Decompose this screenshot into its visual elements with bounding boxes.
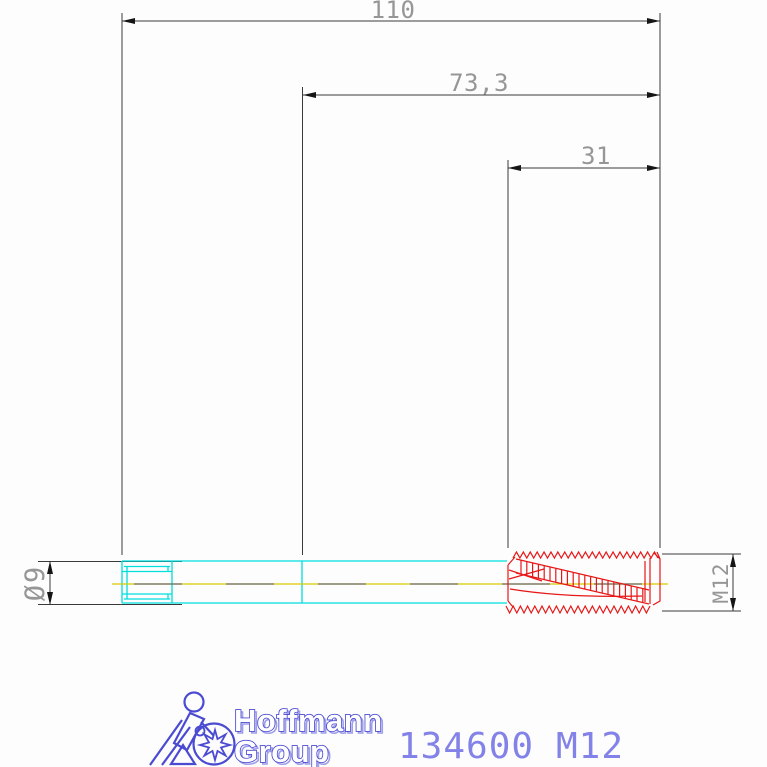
arrow-overall-left (122, 18, 135, 24)
dimension-line-overall (122, 13, 660, 555)
dim-label-thread-length: 31 (581, 142, 611, 170)
hoffmann-group-logo-icon (150, 693, 235, 766)
dimension-arrows-group (47, 18, 736, 611)
dim-label-thread-size: M12 (709, 563, 733, 604)
dim-label-shank-diameter: Ø9 (20, 565, 51, 602)
article-number-text: 134600 (398, 726, 534, 767)
arrow-intermediate-right (647, 92, 660, 98)
brand-line2-text: Group (234, 734, 330, 767)
dim-label-overall-length: 110 (371, 0, 416, 24)
shank-body-outline (122, 561, 507, 603)
technical-drawing-canvas: 110 73,3 31 Ø9 M12 Hoffmann Group Hoffma… (0, 0, 767, 767)
thread-teeth-and-flute (506, 552, 658, 613)
arrow-thread-length-right (647, 165, 660, 171)
arrow-thread-length-left (508, 165, 521, 171)
dim-label-intermediate-length: 73,3 (449, 69, 509, 97)
logo-person-head (185, 693, 204, 712)
dimension-line-shank-diameter (38, 562, 182, 605)
brand-line1-text: Hoffmann (234, 703, 383, 738)
dimension-line-thread-length (508, 160, 660, 548)
article-size-text: M12 (556, 726, 624, 767)
arrow-overall-right (647, 18, 660, 24)
tap-shank-outline-group (122, 561, 507, 603)
tap-thread-outline-group (506, 552, 660, 613)
cad-drawing-page: 110 73,3 31 Ø9 M12 Hoffmann Group Hoffma… (0, 0, 767, 767)
arrow-intermediate-left (303, 92, 316, 98)
shank-square-drive-outline (122, 567, 172, 600)
logo-star-icon (200, 730, 230, 760)
thread-detail-path (506, 606, 650, 613)
thread-detail-path (516, 559, 649, 604)
thread-detail-path (513, 552, 658, 558)
dimension-lines-group (38, 13, 741, 611)
